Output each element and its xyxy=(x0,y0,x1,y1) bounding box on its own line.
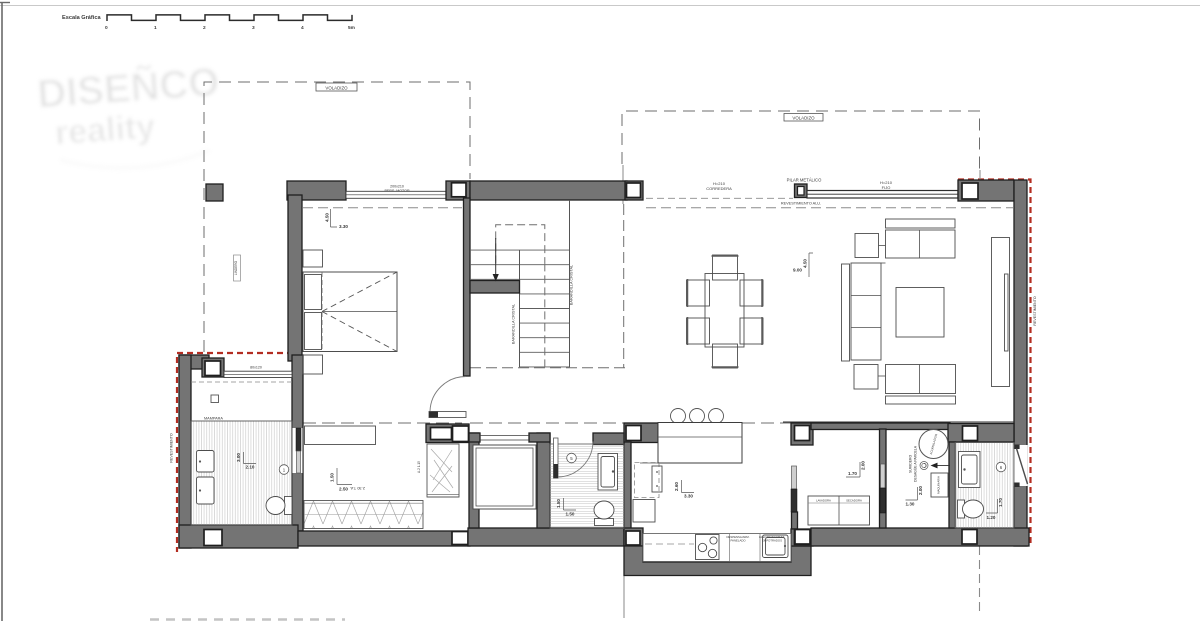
svg-text:REVESTIMIENTO: REVESTIMIENTO xyxy=(170,433,174,462)
svg-text:1.50: 1.50 xyxy=(556,499,561,508)
svg-text:5m: 5m xyxy=(348,25,355,31)
svg-text:2.50: 2.50 xyxy=(339,487,348,492)
svg-text:SUMIDERO: SUMIDERO xyxy=(909,455,913,474)
svg-text:3.30: 3.30 xyxy=(339,224,348,229)
svg-text:PILAR METÁLICO: PILAR METÁLICO xyxy=(787,178,822,183)
svg-text:2.00: 2.00 xyxy=(861,461,866,470)
svg-text:1.70: 1.70 xyxy=(998,498,1003,507)
svg-text:MAMPARA: MAMPARA xyxy=(204,417,223,421)
svg-text:2: 2 xyxy=(203,25,206,31)
svg-text:1: 1 xyxy=(154,25,157,31)
svg-text:3.00: 3.00 xyxy=(236,453,241,462)
svg-text:FIJO: FIJO xyxy=(882,185,891,190)
svg-text:1.50: 1.50 xyxy=(566,512,575,517)
svg-text:1.50: 1.50 xyxy=(330,473,335,482)
svg-text:CORREDERA: CORREDERA xyxy=(706,186,732,191)
svg-text:A.2 1.15: A.2 1.15 xyxy=(417,461,421,473)
svg-text:80x120: 80x120 xyxy=(250,366,262,370)
svg-text:1.30: 1.30 xyxy=(906,502,915,507)
svg-text:BARANDILLA CRISTAL: BARANDILLA CRISTAL xyxy=(570,265,574,305)
svg-text:1.20: 1.20 xyxy=(987,515,996,520)
svg-text:Escala Gráfica: Escala Gráfica xyxy=(62,15,101,21)
svg-text:9.00: 9.00 xyxy=(793,268,802,273)
svg-text:reality: reality xyxy=(54,108,157,153)
svg-text:VOLADIZO: VOLADIZO xyxy=(325,85,348,90)
svg-text:4: 4 xyxy=(301,25,304,31)
svg-text:MAQUINARIA: MAQUINARIA xyxy=(937,476,941,494)
svg-text:1.70: 1.70 xyxy=(848,471,857,476)
svg-text:2.00: 2.00 xyxy=(918,486,923,495)
svg-text:4.50: 4.50 xyxy=(325,213,330,222)
svg-text:LAVADORA: LAVADORA xyxy=(816,498,831,502)
svg-text:DESAGÜE A PARCELA: DESAGÜE A PARCELA xyxy=(914,445,918,482)
svg-text:LINDERO: LINDERO xyxy=(234,260,238,275)
svg-text:PANELADO: PANELADO xyxy=(730,539,746,543)
svg-text:0: 0 xyxy=(105,25,108,31)
svg-text:3.30: 3.30 xyxy=(684,494,693,499)
svg-text:SECADORA: SECADORA xyxy=(846,498,862,502)
svg-text:REVESTIMIENTO ALU.: REVESTIMIENTO ALU. xyxy=(781,202,821,206)
svg-text:3: 3 xyxy=(252,25,255,31)
svg-text:REVESTIMIENTO: REVESTIMIENTO xyxy=(1033,296,1037,325)
svg-text:VOLADIZO: VOLADIZO xyxy=(792,116,815,121)
svg-text:4.50: 4.50 xyxy=(803,259,808,268)
svg-text:2.10: 2.10 xyxy=(246,465,255,470)
svg-text:BARANDILLA CRISTAL: BARANDILLA CRISTAL xyxy=(512,304,516,344)
svg-text:2.60: 2.60 xyxy=(674,482,679,491)
svg-text:2.30 T.A: 2.30 T.A xyxy=(350,486,365,491)
